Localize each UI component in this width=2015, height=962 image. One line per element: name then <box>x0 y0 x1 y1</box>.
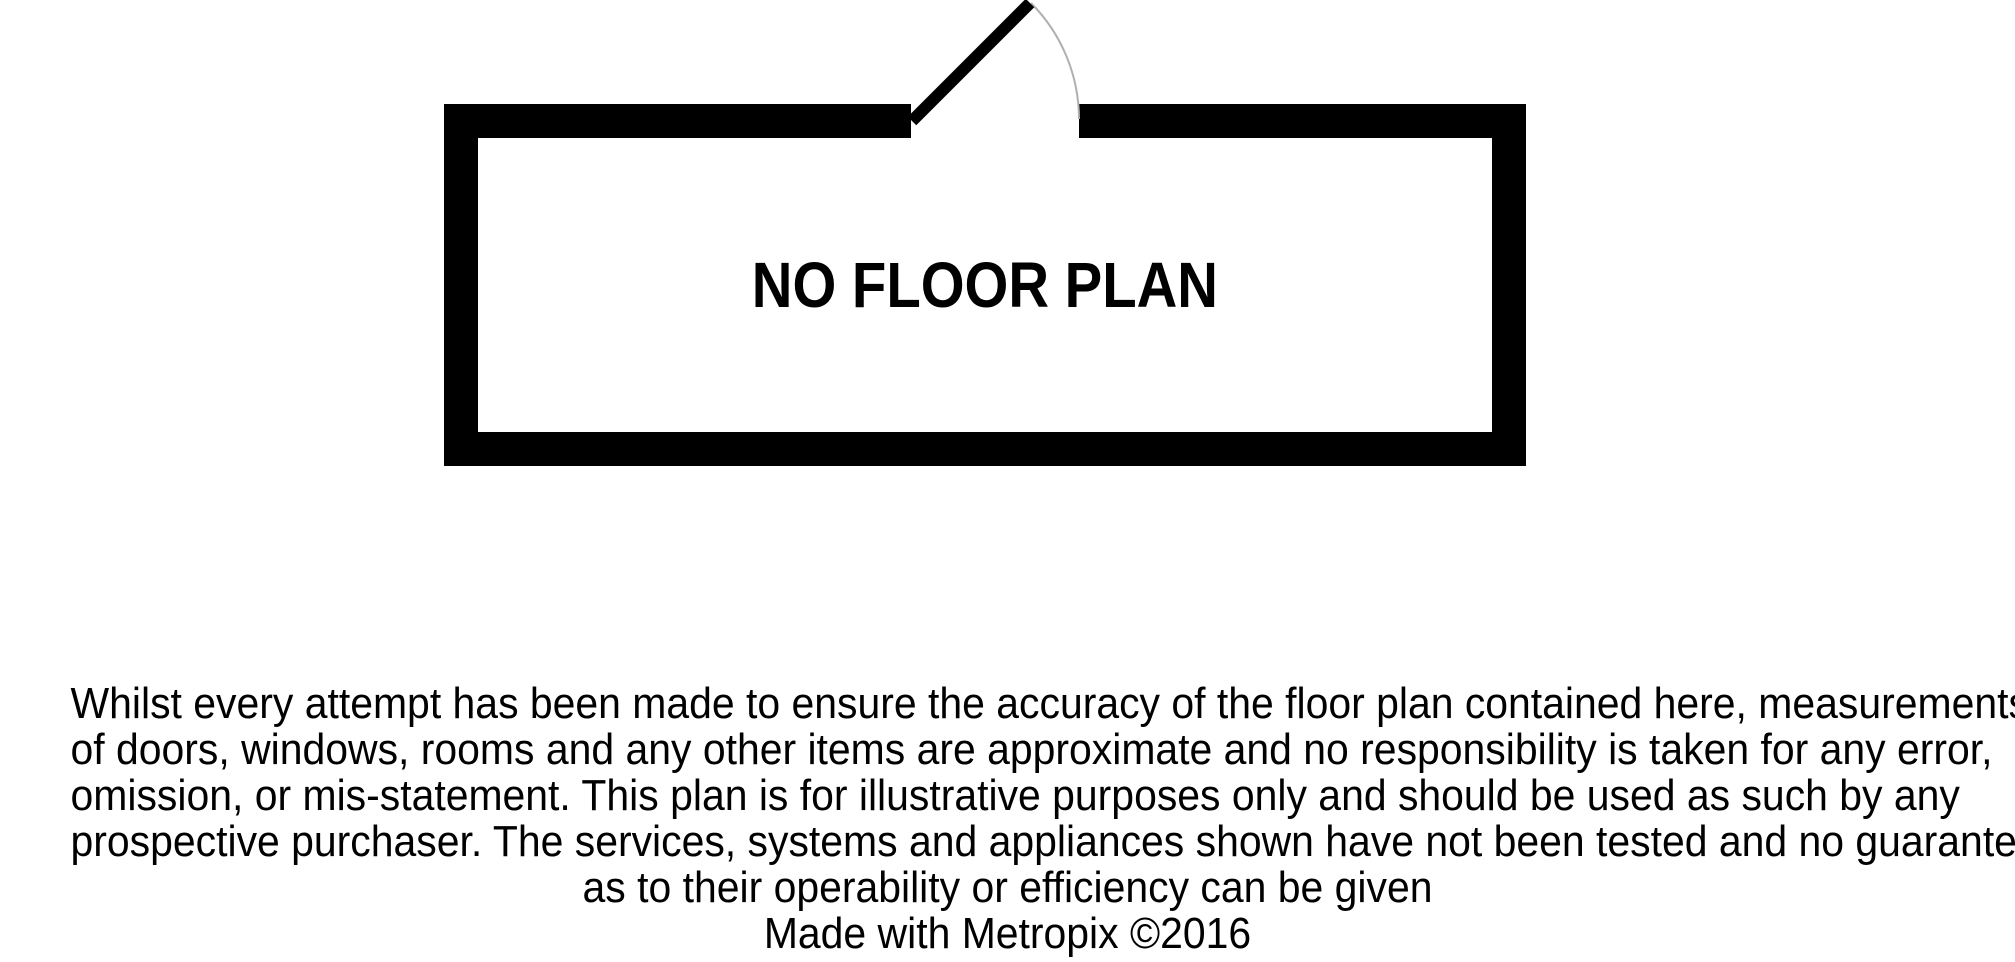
disclaimer-line: Whilst every attempt has been made to en… <box>71 681 1945 727</box>
room-walls <box>444 104 1526 466</box>
disclaimer-line: prospective purchaser. The services, sys… <box>71 819 1945 865</box>
wall-right <box>1492 104 1526 466</box>
disclaimer-line: of doors, windows, rooms and any other i… <box>71 727 1945 773</box>
wall-bottom <box>444 432 1526 466</box>
door-leaf-icon <box>912 3 1030 121</box>
metropix-credit: Made with Metropix ©2016 <box>71 911 1945 957</box>
wall-left <box>444 104 478 466</box>
door-swing-arc-icon <box>1031 3 1079 119</box>
wall-top-left-segment <box>444 104 911 138</box>
disclaimer-block: Whilst every attempt has been made to en… <box>71 681 1945 957</box>
disclaimer-line: omission, or mis-statement. This plan is… <box>71 773 1945 819</box>
disclaimer-line: as to their operability or efficiency ca… <box>71 865 1945 911</box>
wall-top-right-segment <box>1079 104 1526 138</box>
